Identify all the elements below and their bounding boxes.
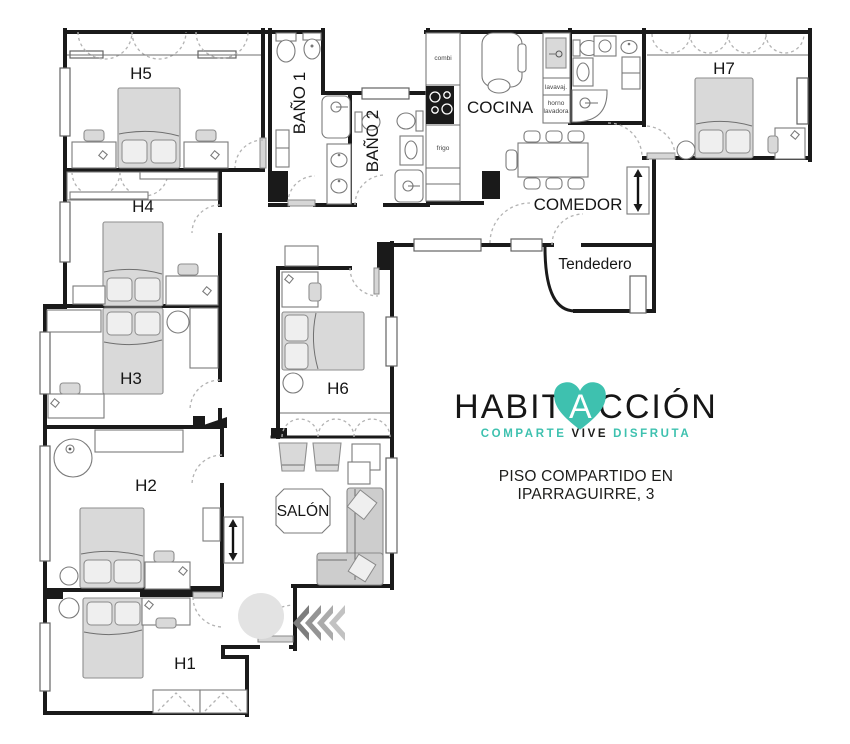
- room-label-bano2: BAÑO 2: [363, 110, 382, 172]
- entrance: [238, 593, 345, 641]
- room-label-comedor: COMEDOR: [534, 195, 623, 214]
- hall-shelf: [285, 246, 318, 266]
- tagline-disfruta: DISFRUTA: [613, 428, 691, 440]
- room-h4: H4: [73, 197, 218, 306]
- appliance-label-frigo: frigo: [437, 145, 450, 152]
- room-label-h2: H2: [135, 476, 157, 495]
- room-label-tendedero: Tendedero: [558, 256, 631, 273]
- logo-text-heart-letter: A: [569, 388, 594, 426]
- logo-text-left: HABIT: [454, 390, 564, 424]
- bano2-toilet: [355, 112, 362, 132]
- h7-desk: [775, 128, 805, 159]
- logo-text-right: CCIÓN: [598, 390, 718, 424]
- room-salon: SALÓN: [276, 443, 383, 585]
- room-label-bano1: BAÑO 1: [290, 72, 309, 134]
- aseo-toilet: [573, 40, 580, 56]
- room-h3: H3: [47, 308, 218, 418]
- logo: HABITACCIÓN: [435, 390, 737, 424]
- room-label-h7: H7: [713, 59, 735, 78]
- h3-shelf: [47, 310, 101, 332]
- appliance-label-lavavajillas: lavavaj.: [545, 84, 567, 91]
- bano2-bidet: [416, 111, 423, 131]
- h2-shelf: [203, 508, 220, 541]
- h4-table: [73, 286, 105, 304]
- appliance-label-lavadora: lavadora: [544, 108, 569, 115]
- entrance-arrows-icon: [293, 605, 345, 641]
- room-aseo: [572, 36, 640, 122]
- h7-stool: [677, 141, 695, 159]
- room-h2: H2: [54, 430, 220, 589]
- appliance-label-horno: horno: [548, 100, 565, 107]
- room-label-h1: H1: [174, 654, 196, 673]
- h5-desk-left: [72, 142, 116, 168]
- salon-armchair-2: [313, 443, 341, 471]
- room-label-h3: H3: [120, 369, 142, 388]
- appliance-label-combi: combi: [434, 55, 451, 62]
- aseo-bidet: [621, 41, 637, 54]
- room-bano2: BAÑO 2: [355, 110, 423, 202]
- salon-armchair-1: [279, 443, 307, 471]
- room-label-salon: SALÓN: [277, 503, 330, 520]
- room-h5: H5: [72, 64, 228, 168]
- aseo-washer: [594, 36, 616, 56]
- h2-round-table: [54, 439, 92, 477]
- h2-stool: [60, 567, 78, 585]
- room-label-h5: H5: [130, 64, 152, 83]
- branding-block: HABITACCIÓN COMPARTEVIVEDISFRUTA: [435, 390, 737, 440]
- h2-sideboard: [95, 430, 183, 452]
- h3-cabinet: [190, 308, 218, 368]
- h5-desk-right: [184, 142, 228, 168]
- room-h7: H7: [677, 59, 805, 159]
- dining-table: [518, 143, 588, 177]
- entrance-mat: [238, 593, 284, 639]
- listing-caption: PISO COMPARTIDO EN IPARRAGUIRRE, 3: [435, 468, 737, 504]
- h3-stool: [167, 311, 189, 333]
- h6-stool: [283, 373, 303, 393]
- room-h1: H1: [59, 598, 196, 678]
- room-label-cocina: COCINA: [467, 98, 534, 117]
- h1-stool: [59, 598, 79, 618]
- logo-heart-icon: A: [564, 390, 598, 424]
- room-label-h4: H4: [132, 197, 154, 216]
- corridor-radiator: [224, 517, 243, 563]
- room-label-h6: H6: [327, 379, 349, 398]
- room-comedor: COMEDOR: [506, 131, 649, 214]
- floorplan-canvas: H5 H4 H3: [0, 0, 850, 744]
- floorplan-drawing: H5 H4 H3: [0, 0, 850, 744]
- room-tendedero: Tendedero: [558, 256, 631, 273]
